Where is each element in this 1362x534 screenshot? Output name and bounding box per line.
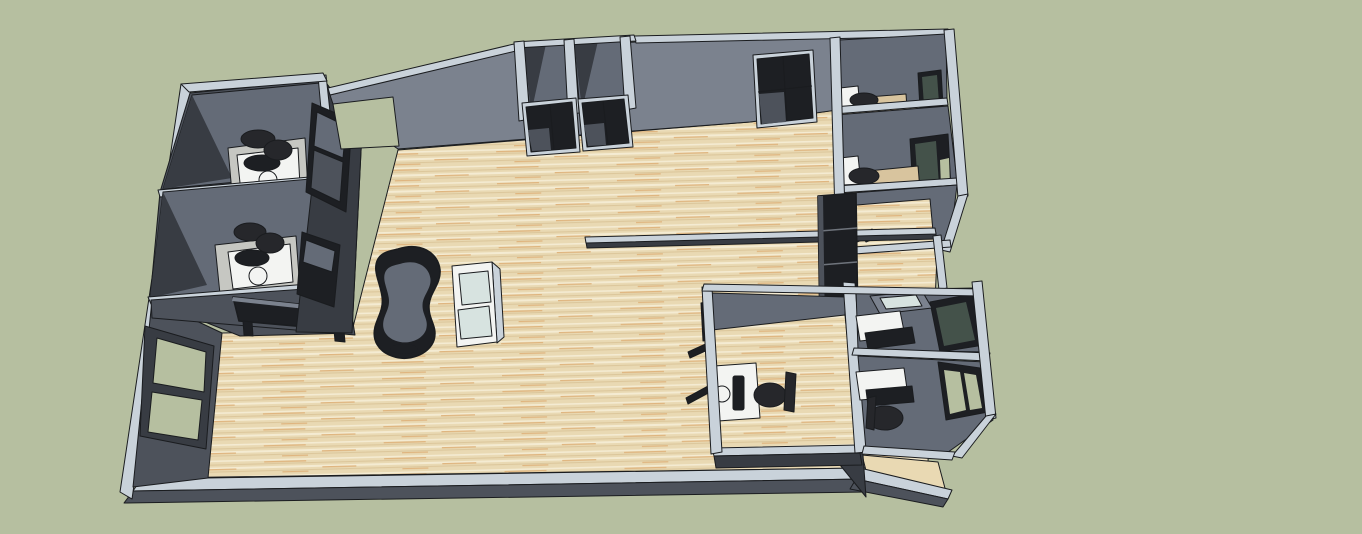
door-glass-lower [759,92,786,124]
door-glass-lower [528,128,551,151]
office-chair [849,168,879,184]
tray-table-top [880,295,922,309]
cabinet-glass-lower [458,306,492,339]
monitor [733,376,744,410]
office-chair-back [866,396,876,430]
render-viewport [0,0,1362,534]
cabinet-glass-upper [459,271,491,305]
table-leg [243,321,253,336]
north-doorway [333,97,399,149]
office-chair-seat [256,233,284,253]
office-chair-seat [264,140,292,160]
office-chair-back [784,372,796,412]
window-pane-lower [148,392,202,440]
louver-frame [297,232,340,307]
room-south-face [714,453,862,468]
floor-plan-scene [0,0,1362,534]
bean-sofa-lip [390,344,418,354]
glazed-door-b [578,95,633,151]
glazed-door-a [522,98,580,156]
display-cabinet [452,262,504,347]
north-double-door [753,50,817,128]
southeast-office-block [686,281,996,468]
office-chair-seat [754,383,786,407]
se-office-large [712,293,862,468]
louver-unit-2 [297,232,340,307]
stool-ball [249,267,267,285]
west-window [140,326,214,449]
se-office-a [856,288,988,352]
